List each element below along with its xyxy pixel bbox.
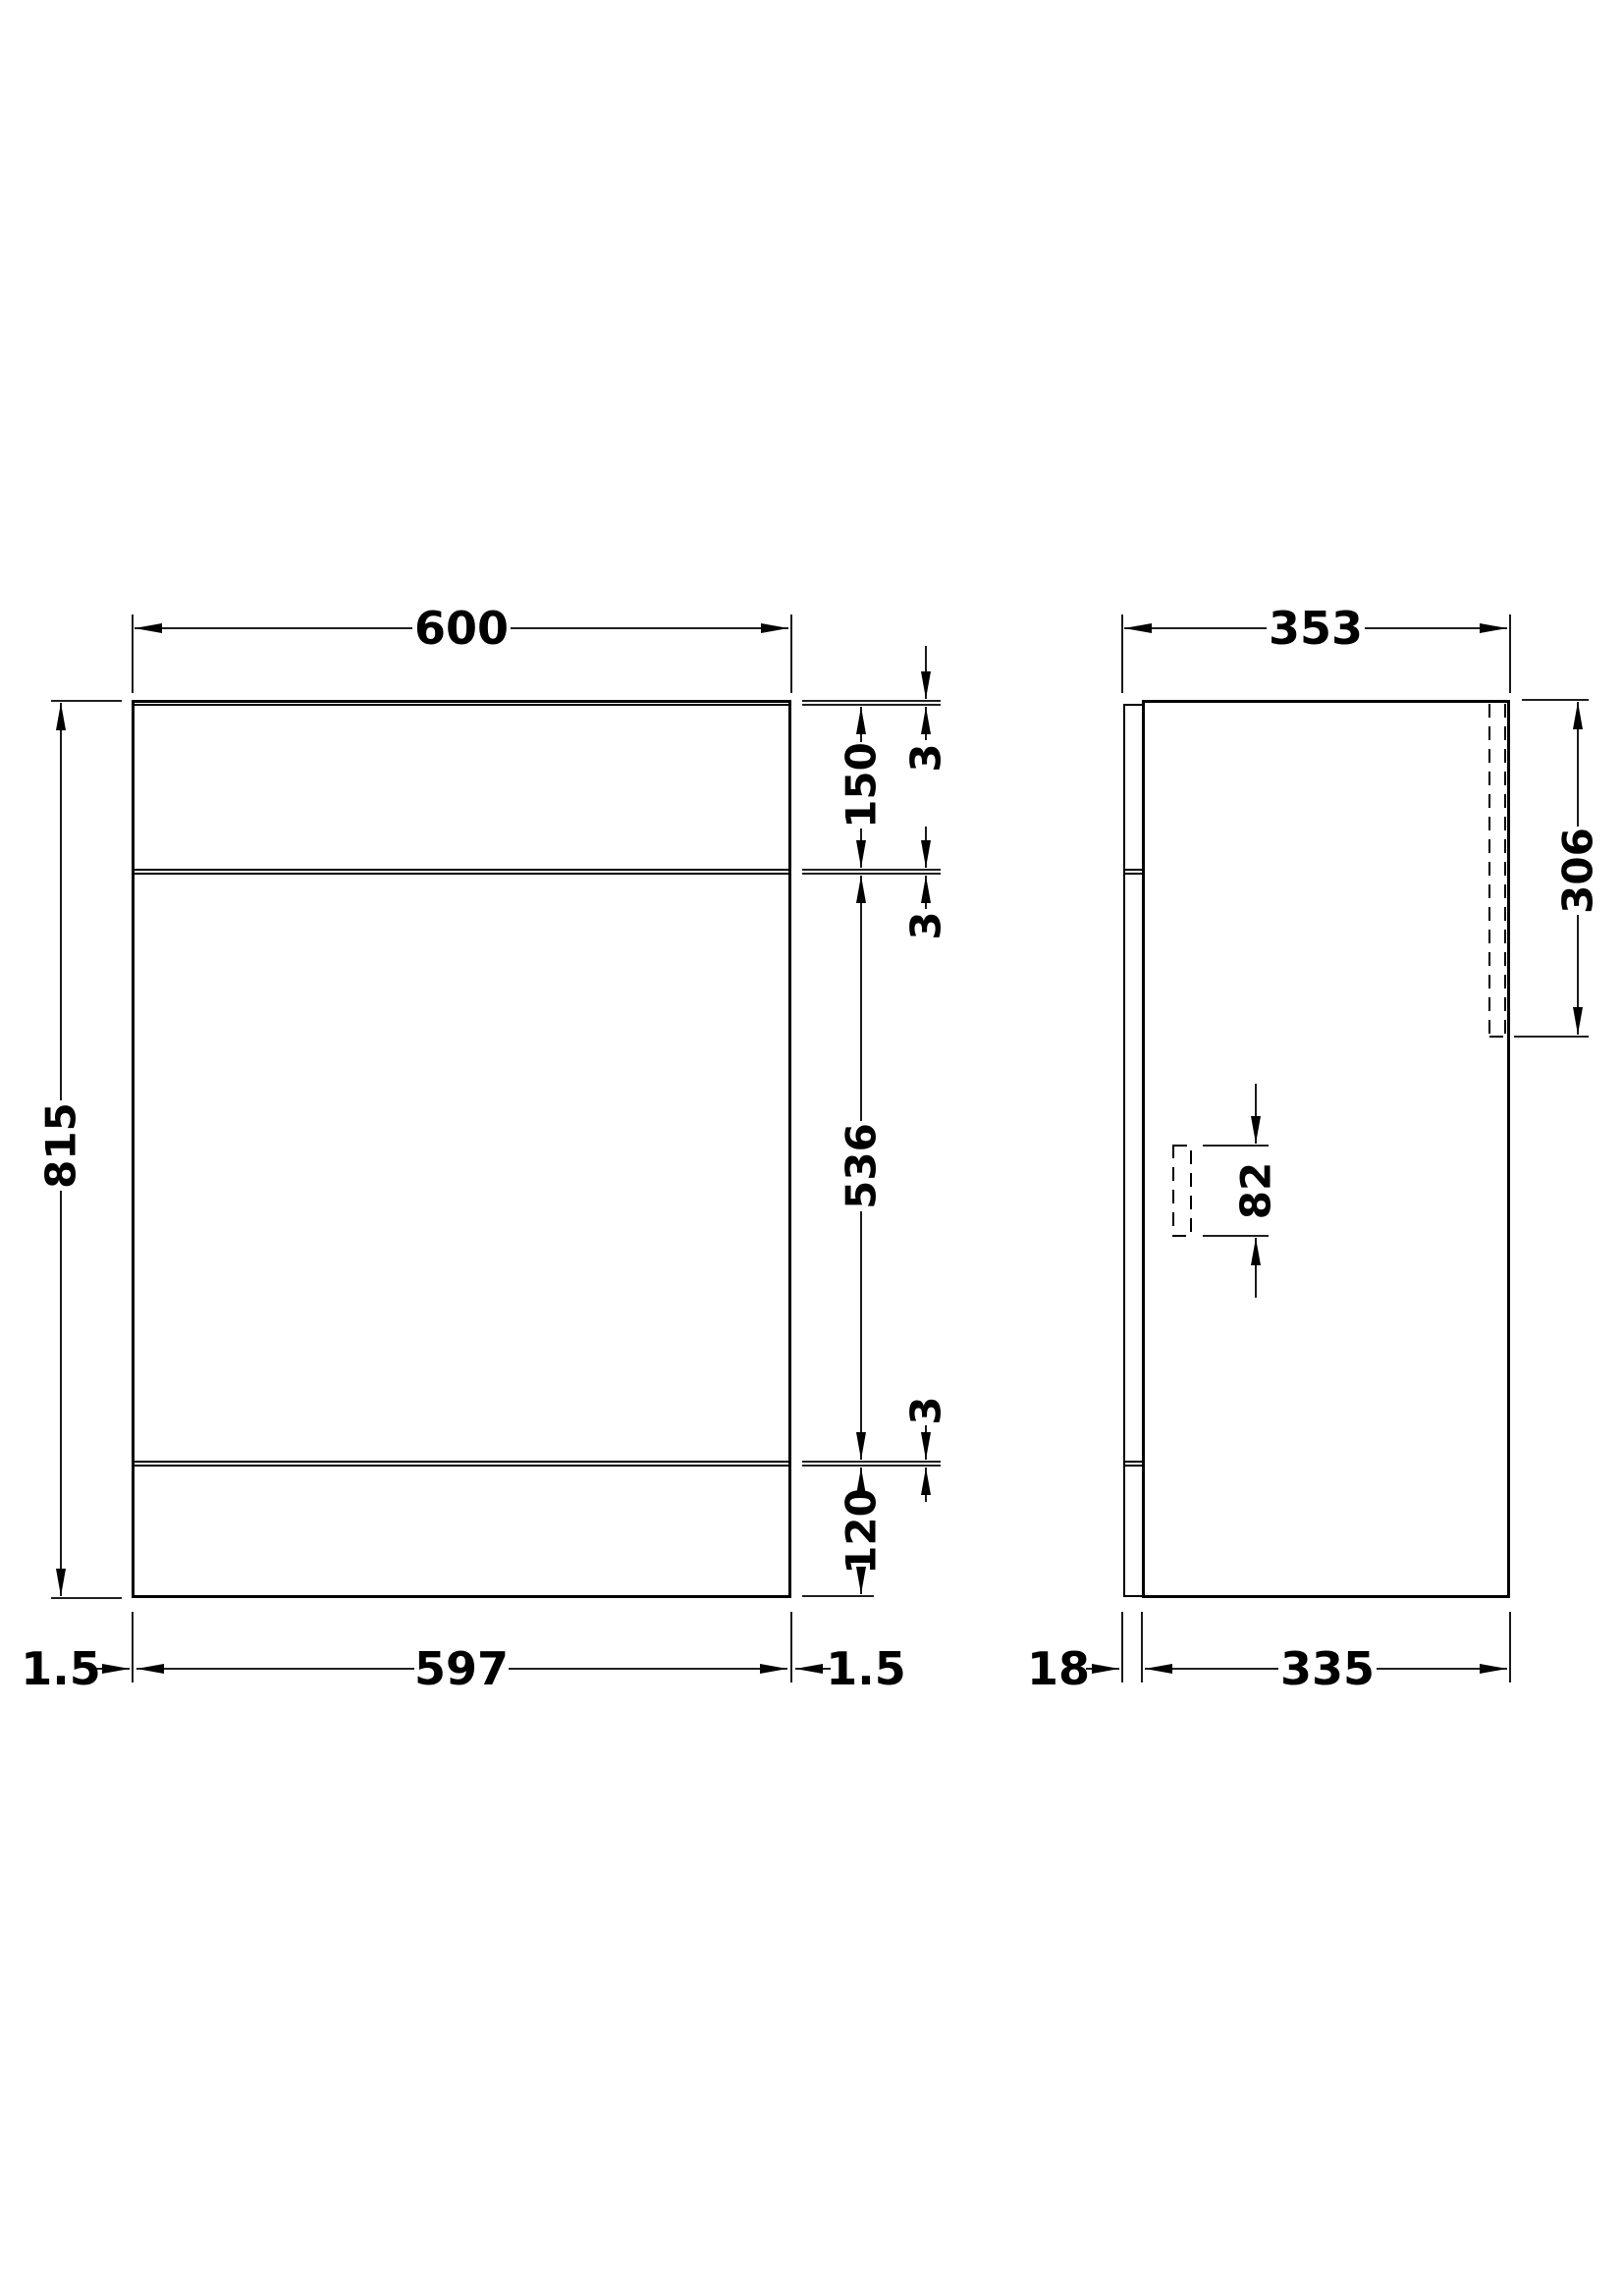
dim-label-right-inset: 1.5 <box>826 1642 906 1695</box>
dim-overall-width: 600 <box>133 602 791 693</box>
dim-side-bottom: 18 335 <box>1027 1612 1510 1695</box>
dim-label-body-depth: 335 <box>1280 1642 1375 1695</box>
side-view-outline <box>1123 702 1509 1597</box>
dim-lower-gap: 3 <box>902 1396 950 1502</box>
dim-door-section: 536 <box>838 876 886 1460</box>
dim-upper-gap: 3 <box>902 827 950 940</box>
dim-label-door-section: 536 <box>838 1123 886 1209</box>
technical-drawing-page: 600 815 150 536 <box>0 0 1623 2296</box>
dim-label-overall-width: 600 <box>414 602 509 655</box>
dim-label-opening-width: 597 <box>414 1642 509 1695</box>
dim-label-overall-depth: 353 <box>1269 602 1363 655</box>
front-view: 600 815 150 536 <box>21 602 949 1695</box>
dim-plinth: 120 <box>838 1468 886 1594</box>
side-cabinet-body <box>1144 702 1509 1597</box>
dim-label-lower-gap: 3 <box>902 1396 950 1424</box>
dim-label-recess-height: 306 <box>1554 828 1602 914</box>
technical-drawing-canvas: 600 815 150 536 <box>0 0 1623 2296</box>
side-view: 353 306 82 18 <box>1027 602 1602 1695</box>
dim-bracket-height: 82 <box>1203 1084 1280 1298</box>
dim-label-upper-gap: 3 <box>902 911 950 939</box>
dim-label-left-inset: 1.5 <box>21 1642 101 1695</box>
dim-overall-depth: 353 <box>1122 602 1510 693</box>
dim-label-front-panel-thickness: 18 <box>1027 1642 1090 1695</box>
dim-top-panel-thickness: 3 <box>902 646 950 773</box>
dim-overall-height: 815 <box>37 701 123 1598</box>
hidden-bracket-outline <box>1173 1146 1191 1236</box>
hidden-recess-outline <box>1489 704 1509 1037</box>
dim-label-top-section: 150 <box>838 742 886 828</box>
dim-front-bottom: 1.5 597 1.5 <box>21 1612 906 1695</box>
dim-recess-height: 306 <box>1514 700 1602 1037</box>
dim-label-top-panel-thickness: 3 <box>902 743 950 772</box>
dim-top-section: 150 <box>838 707 886 868</box>
dim-label-overall-height: 815 <box>37 1102 85 1189</box>
dim-label-bracket-height: 82 <box>1232 1162 1280 1219</box>
dim-label-plinth: 120 <box>838 1488 886 1575</box>
front-view-outline <box>134 702 790 1597</box>
